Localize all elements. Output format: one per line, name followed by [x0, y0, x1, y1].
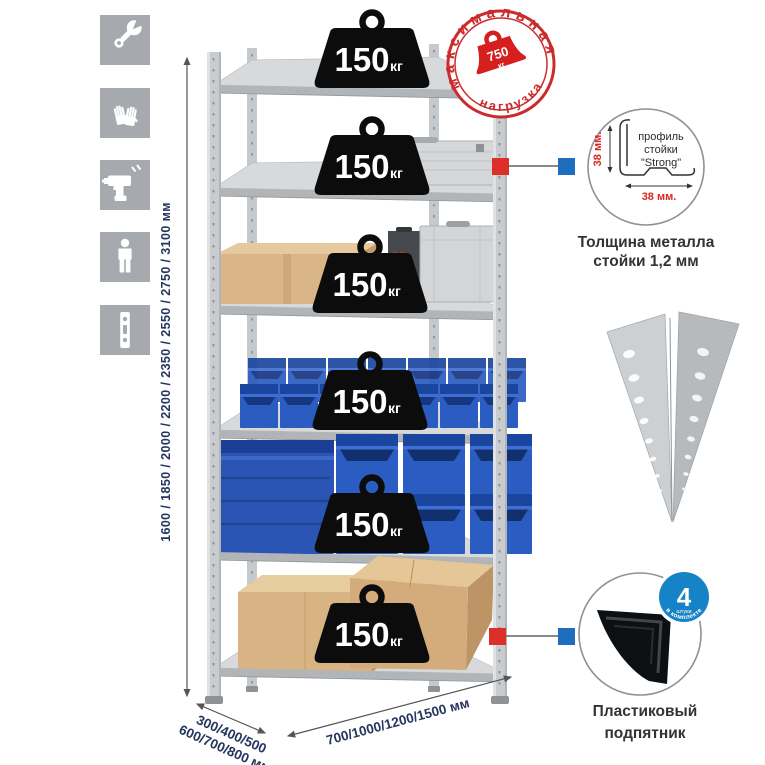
svg-text:кг: кг: [390, 633, 403, 649]
weight-label: 150: [334, 506, 389, 543]
wrench-icon: [100, 15, 150, 65]
profile-vertical-dim: 38 мм.: [592, 132, 604, 167]
metal-case: [420, 221, 494, 302]
max-load-stamp: максимальная нагрузка 750 кг: [425, 0, 575, 133]
svg-text:кг: кг: [388, 283, 401, 299]
left-toolbar: [100, 15, 150, 355]
svg-text:кг: кг: [388, 400, 401, 416]
product-infographic: 1600 / 1850 / 2000 / 2200 / 2350 / 2550 …: [0, 0, 765, 765]
weight-label: 150: [334, 148, 389, 185]
profile-horizontal-dim: 38 мм.: [642, 191, 677, 203]
foot-caption: Пластиковый: [593, 703, 698, 720]
foot-left: [205, 696, 223, 704]
svg-text:подпятник: подпятник: [604, 725, 685, 742]
red-marker: [489, 628, 506, 645]
weight-badge: 150 кг: [315, 13, 430, 89]
scene: 1600 / 1850 / 2000 / 2200 / 2350 / 2550 …: [0, 0, 765, 765]
svg-text:кг: кг: [390, 58, 403, 74]
svg-text:кг: кг: [390, 523, 403, 539]
weight-badge: 150 кг: [315, 120, 430, 196]
large-storage-box: [216, 440, 334, 554]
gloves-icon: [100, 88, 150, 138]
person-icon: [100, 232, 150, 282]
qty-badge: 4 штуки в комплекте: [656, 569, 713, 626]
svg-text:стойки: стойки: [644, 144, 678, 156]
foot-right: [491, 696, 509, 704]
height-dimension-label: 1600 / 1850 / 2000 / 2200 / 2350 / 2550 …: [159, 202, 173, 542]
front-right-post: [493, 60, 507, 696]
red-marker: [492, 158, 509, 175]
width-dimension-label: 700/1000/1200/1500 мм: [325, 695, 471, 748]
svg-text:стойки 1,2 мм: стойки 1,2 мм: [593, 253, 698, 270]
qty-value: 4: [677, 582, 692, 612]
depth-dimension-label: 300/400/500 600/700/800 мм: [177, 707, 280, 765]
weight-label: 150: [332, 266, 387, 303]
connector-top: [492, 158, 575, 175]
weight-label: 150: [334, 41, 389, 78]
profile-caption: Толщина металла: [578, 234, 715, 251]
post-photo: [607, 312, 739, 522]
blue-marker: [558, 628, 575, 645]
svg-text:кг: кг: [390, 165, 403, 181]
connector-bottom: [489, 628, 575, 645]
weight-label: 150: [332, 383, 387, 420]
svg-text:"Strong": "Strong": [641, 157, 681, 169]
blue-marker: [558, 158, 575, 175]
front-left-post: [207, 52, 221, 696]
rack-illustration: 150 кг 150 кг 150 кг 150 кг 150 кг 150 к…: [205, 13, 532, 705]
drill-icon: [100, 160, 150, 210]
weight-label: 150: [334, 616, 389, 653]
profile-detail-circle: профиль стойки "Strong" 38 мм. 38 мм.: [588, 109, 704, 225]
profile-label: профиль: [638, 131, 684, 143]
post-profile-icon: [100, 305, 150, 355]
